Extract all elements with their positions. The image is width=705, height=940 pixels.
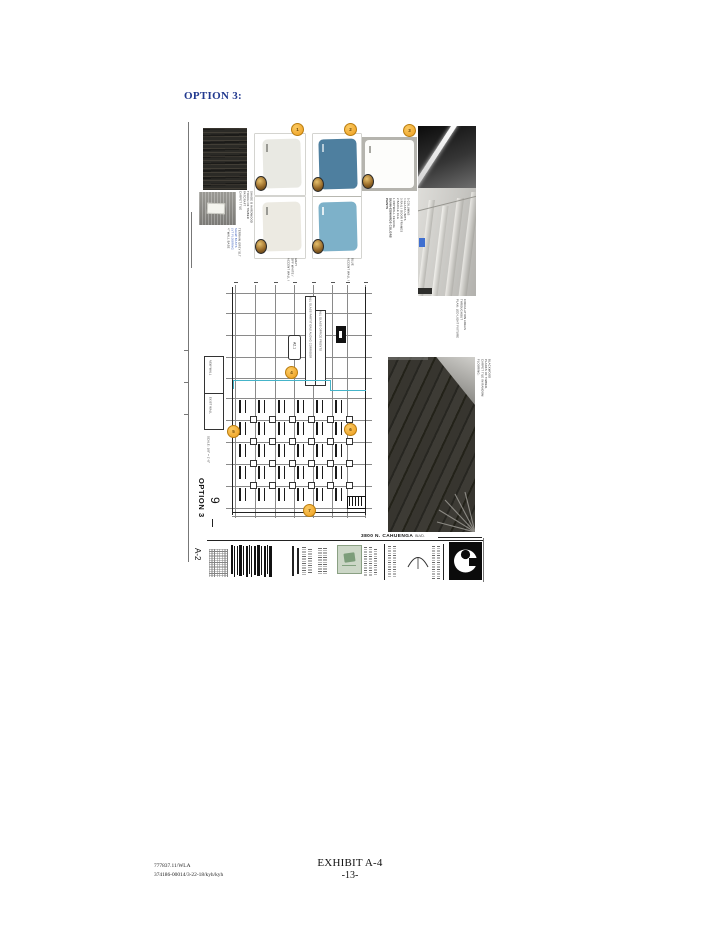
grid-line <box>226 293 372 294</box>
table-unit <box>308 416 315 423</box>
desk-unit <box>245 444 247 457</box>
grid-tick <box>312 282 316 283</box>
desk-unit <box>322 466 324 479</box>
titleblock-microcol <box>318 548 322 575</box>
barcode-bar <box>237 546 238 575</box>
grid-tick <box>364 282 368 283</box>
desk-unit <box>341 444 343 457</box>
desk-unit <box>341 488 343 501</box>
highlight-line <box>233 380 331 381</box>
plan-detail-tag: A2.1 <box>288 335 301 360</box>
desk-unit <box>341 422 343 435</box>
grid-tick <box>254 282 258 283</box>
table-unit <box>346 438 353 445</box>
titleblock-microcol <box>393 546 396 578</box>
titleblock-microcol <box>364 547 367 577</box>
footer-ref-line1: 777837.11/WLA <box>154 862 223 871</box>
desk-unit <box>278 488 280 501</box>
table-unit <box>269 416 276 423</box>
desk-unit <box>322 422 324 435</box>
table-unit <box>327 438 334 445</box>
plan-room-line <box>361 497 362 506</box>
firm-logo <box>449 542 482 580</box>
plan-note-text: ALL GLASS OFFICE FRONTS <box>318 311 322 351</box>
barcode-bar <box>261 546 262 575</box>
desk-unit <box>264 488 266 501</box>
palm-frond-silhouette <box>435 490 475 532</box>
table-unit <box>289 460 296 467</box>
table-unit <box>250 438 257 445</box>
table-unit <box>250 460 257 467</box>
plan-note-box-2: ALL GLASS OFFICE FRONTS <box>315 310 326 386</box>
barcode-bar <box>239 545 242 576</box>
desk-unit <box>335 422 337 435</box>
sheet-right-border <box>483 538 484 582</box>
desk-unit <box>278 422 280 435</box>
desk-unit <box>258 400 260 413</box>
titleblock-microcol <box>432 546 435 580</box>
table-unit <box>269 482 276 489</box>
plan-room-line <box>355 497 356 506</box>
table-unit <box>250 482 257 489</box>
callout-4: 4 <box>285 366 298 379</box>
desk-unit <box>245 466 247 479</box>
grid-tick <box>274 282 278 283</box>
desk-unit <box>297 422 299 435</box>
titleblock-microtext <box>209 549 228 577</box>
project-address: 3800 N. CAHUENGA BLVD. <box>361 534 425 539</box>
desk-unit <box>341 400 343 413</box>
desk-unit <box>264 400 266 413</box>
desk-unit <box>303 444 305 457</box>
desk-unit <box>284 488 286 501</box>
titleblock-arc <box>406 552 430 569</box>
desk-unit <box>303 400 305 413</box>
desk-unit <box>297 466 299 479</box>
barcode-bar <box>264 546 266 577</box>
table-unit <box>327 460 334 467</box>
desk-unit <box>316 400 318 413</box>
titleblock-microcol <box>323 548 327 575</box>
grid-line <box>226 378 372 379</box>
titleblock-bar <box>292 546 294 576</box>
plan-wall <box>365 287 366 515</box>
plan-wall <box>232 516 366 517</box>
desk-unit <box>303 466 305 479</box>
desk-unit <box>303 422 305 435</box>
desk-unit <box>258 444 260 457</box>
desk-unit <box>278 400 280 413</box>
titleblock-microcol <box>388 546 391 578</box>
figure-underline <box>212 519 213 527</box>
plan-room-line <box>358 497 359 506</box>
desk-unit <box>258 422 260 435</box>
barcode-bar <box>254 546 256 575</box>
barcode-bar <box>257 545 260 576</box>
desk-unit <box>316 466 318 479</box>
desk-unit <box>278 466 280 479</box>
exhibit-label: EXHIBIT A-4 <box>280 857 420 869</box>
footer-ref-line2: 374186-00014/3-22-18/kyh/kyh <box>154 871 223 880</box>
desk-unit <box>239 444 241 457</box>
barcode-bar <box>243 546 244 575</box>
flooring-caption: FLOORING: CARPET TILE IN RANDOM PLANKS O… <box>476 359 491 509</box>
barcode-bar <box>234 546 235 577</box>
photo-corner-wedge <box>433 357 475 405</box>
titleblock-microcol <box>437 546 440 580</box>
edge-tick <box>184 350 189 351</box>
table-unit <box>327 416 334 423</box>
barcode-bar <box>267 545 268 574</box>
desk-unit <box>264 444 266 457</box>
detail-tag-text: A2.1 <box>292 342 297 349</box>
grid-line <box>235 285 236 518</box>
desk-unit <box>245 488 247 501</box>
table-unit <box>346 482 353 489</box>
table-unit <box>269 438 276 445</box>
desk-unit <box>278 444 280 457</box>
desk-unit <box>335 488 337 501</box>
plan-legend-box: NEW WALL EXIST WALL <box>204 356 224 430</box>
desk-unit <box>239 488 241 501</box>
approval-stamp <box>337 545 362 574</box>
edge-tick <box>184 382 189 383</box>
plan-big-figure: 9 <box>207 497 223 517</box>
desk-unit <box>245 422 247 435</box>
desk-unit <box>284 466 286 479</box>
desk-unit <box>316 422 318 435</box>
barcode-bar <box>246 546 248 577</box>
plan-wall <box>232 287 233 515</box>
desk-unit <box>264 422 266 435</box>
highlight-line <box>330 390 366 391</box>
desk-unit <box>322 488 324 501</box>
desk-unit <box>316 444 318 457</box>
callout-5: 5 <box>227 425 240 438</box>
barcode-bar <box>269 546 272 577</box>
table-unit <box>289 438 296 445</box>
desk-unit <box>258 466 260 479</box>
table-unit <box>346 460 353 467</box>
barcode-bar <box>249 545 250 574</box>
desk-unit <box>258 488 260 501</box>
table-unit <box>308 460 315 467</box>
titleblock-top-rule <box>207 540 484 541</box>
barcode-bar <box>251 546 252 577</box>
legend-new-wall: NEW WALL <box>208 360 212 375</box>
table-unit <box>269 460 276 467</box>
plan-option-label: OPTION 3 <box>196 478 206 530</box>
document-page: OPTION 3: CARPET TILE PATCRAFT TOUCH OF … <box>0 0 705 940</box>
table-unit <box>346 416 353 423</box>
titleblock-divider <box>443 544 444 580</box>
desk-unit <box>239 400 241 413</box>
desk-unit <box>284 400 286 413</box>
desk-unit <box>335 400 337 413</box>
grid-line <box>226 313 372 314</box>
desk-unit <box>322 400 324 413</box>
desk-unit <box>239 466 241 479</box>
callout-7: 7 <box>303 504 316 517</box>
desk-unit <box>297 444 299 457</box>
titleblock-bar <box>297 548 299 574</box>
footer-reference: 777837.11/WLA 374186-00014/3-22-18/kyh/k… <box>154 862 223 879</box>
edge-tick <box>184 414 189 415</box>
plan-note-text: ALL GLASS PARTITIONS ALONG CORRIDOR <box>308 297 312 358</box>
barcode-bar <box>231 545 233 574</box>
plan-wall <box>232 512 366 513</box>
plan-room-line <box>349 497 350 506</box>
grid-tick <box>331 282 335 283</box>
grid-tick <box>234 282 238 283</box>
grid-line <box>226 398 372 399</box>
table-unit <box>250 416 257 423</box>
grid-tick <box>293 282 297 283</box>
table-unit <box>289 416 296 423</box>
plan-room-line <box>352 497 353 506</box>
project-address-tail: BLVD. <box>415 534 425 538</box>
legend-exist-wall: EXIST WALL <box>208 397 212 414</box>
project-address-bold: 3800 N. CAHUENGA <box>361 534 413 539</box>
titleblock-microcol <box>374 549 377 575</box>
grid-tick <box>346 282 350 283</box>
desk-unit <box>335 466 337 479</box>
table-unit <box>308 482 315 489</box>
titleblock-microcol <box>369 547 372 577</box>
desk-unit <box>341 466 343 479</box>
desk-unit <box>297 400 299 413</box>
exhibit-page-number: -13- <box>280 870 420 881</box>
desk-unit <box>316 488 318 501</box>
table-unit <box>327 482 334 489</box>
table-unit <box>308 438 315 445</box>
titleblock-microcol <box>308 549 312 574</box>
callout-6: 6 <box>344 423 357 436</box>
desk-unit <box>245 400 247 413</box>
desk-unit <box>284 444 286 457</box>
desk-unit <box>335 444 337 457</box>
plan-scale-note: SCALE: 1/8" = 1'-0" <box>206 436 210 476</box>
address-rule <box>438 537 482 538</box>
plan-shaft <box>336 326 346 343</box>
revision-barcode <box>231 545 269 576</box>
floor-plan <box>0 0 705 940</box>
desk-unit <box>284 422 286 435</box>
flooring-photo <box>388 357 475 532</box>
table-unit <box>289 482 296 489</box>
desk-unit <box>322 444 324 457</box>
titleblock-divider <box>384 544 385 580</box>
titleblock-microcol <box>302 547 306 575</box>
sheet-number: A-2 <box>191 548 202 576</box>
desk-unit <box>297 488 299 501</box>
desk-unit <box>303 488 305 501</box>
desk-unit <box>264 466 266 479</box>
